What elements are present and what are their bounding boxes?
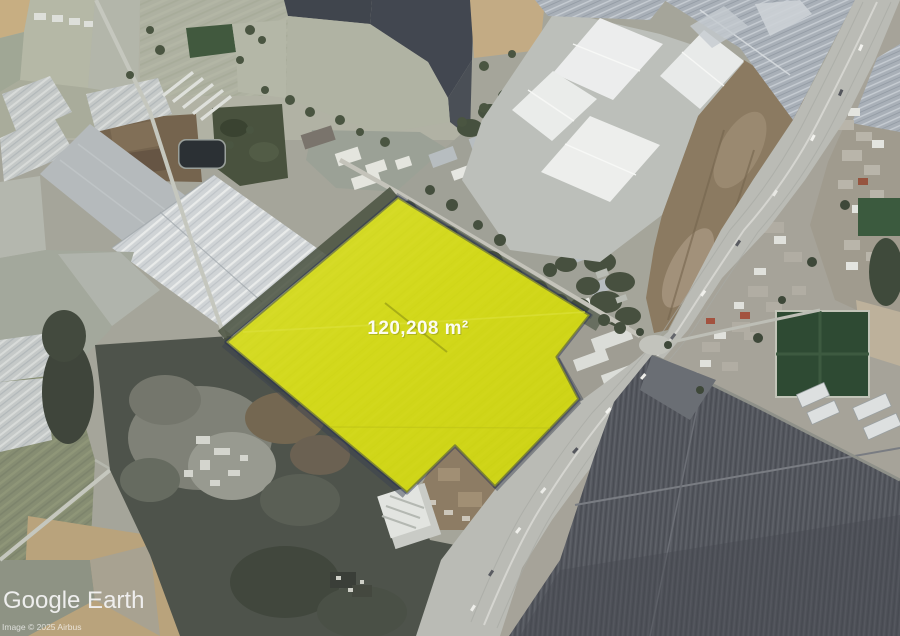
svg-text:Google Earth: Google Earth — [3, 587, 144, 614]
svg-text:120,208 m²: 120,208 m² — [367, 318, 468, 339]
svg-text:Image © 2025 Airbus: Image © 2025 Airbus — [2, 622, 82, 632]
